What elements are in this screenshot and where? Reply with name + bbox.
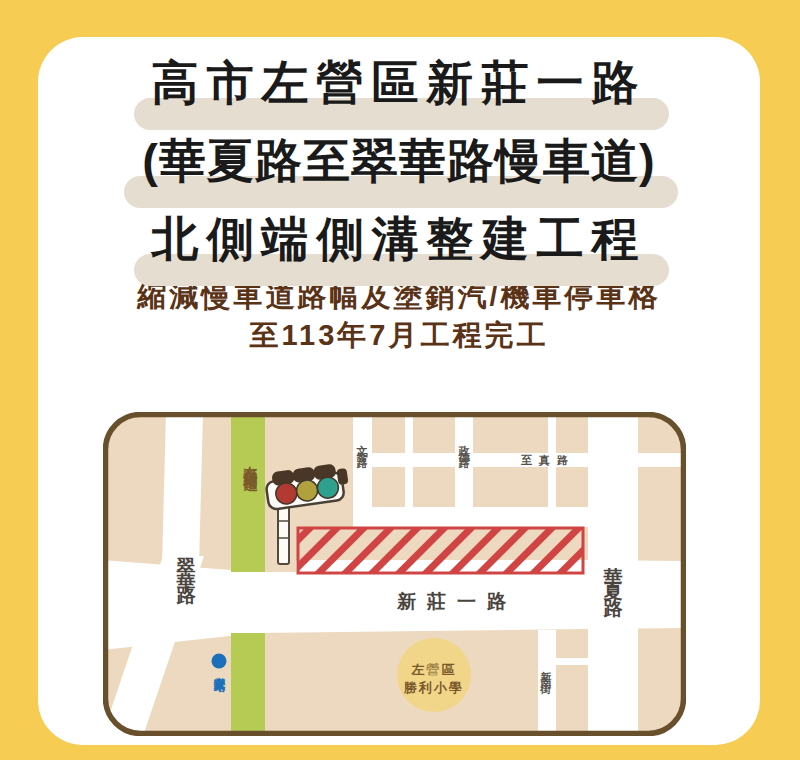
label-xinzhuang-road: 新莊一路: [397, 592, 517, 611]
road-xinnan: [538, 630, 556, 736]
title-text-3: 北側端側溝整建工程: [152, 212, 647, 265]
road-minor-3: [556, 658, 590, 665]
title: 高市左營區新莊一路 (華夏路至翠華路慢車道) 北側端側溝整建工程: [38, 37, 760, 277]
label-zuoying-station: 左營火車站: [213, 668, 225, 673]
greenway-strip-north: [231, 412, 265, 572]
label-school-line1: 左營區: [369, 661, 499, 679]
notice-card: 高市左營區新莊一路 (華夏路至翠華路慢車道) 北側端側溝整建工程 縮減慢車道路幅…: [38, 37, 760, 745]
title-line-2: (華夏路至翠華路慢車道): [38, 121, 760, 199]
label-zhizhen-road: 至真路: [521, 455, 575, 466]
poster-background: 高市左營區新莊一路 (華夏路至翠華路慢車道) 北側端側溝整建工程 縮減慢車道路幅…: [0, 0, 800, 760]
title-text-2: (華夏路至翠華路慢車道): [142, 134, 655, 187]
subtitle: 縮減慢車道路幅及塗銷汽/機車停車格 至113年7月工程完工: [38, 277, 760, 355]
label-xinnan-street: 新南街: [540, 662, 551, 680]
label-wenzhi-road: 文智路: [356, 436, 367, 454]
label-school: 左營區 勝利小學: [369, 661, 499, 697]
greenway-strip-south: [231, 633, 265, 736]
location-map: 翠華路 左營綠園道 新莊一路 華夏路 文智路 政德路 至真路 新南街 左營區 勝…: [103, 412, 686, 736]
title-line-3: 北側端側溝整建工程: [38, 199, 760, 277]
label-zhengde-road: 政德路: [458, 436, 469, 454]
label-huaxia-road: 華夏路: [604, 551, 623, 599]
construction-zone-icon: [298, 528, 583, 573]
title-text-1: 高市左營區新莊一路: [152, 56, 647, 109]
label-zuoying-greenway: 左營綠園道: [244, 455, 258, 470]
label-school-line2: 勝利小學: [369, 679, 499, 697]
title-line-1: 高市左營區新莊一路: [38, 43, 760, 121]
station-dot-icon: [212, 654, 227, 669]
label-cuihua-road: 翠華路: [177, 542, 196, 584]
subtitle-line-2: 至113年7月工程完工: [38, 316, 760, 355]
